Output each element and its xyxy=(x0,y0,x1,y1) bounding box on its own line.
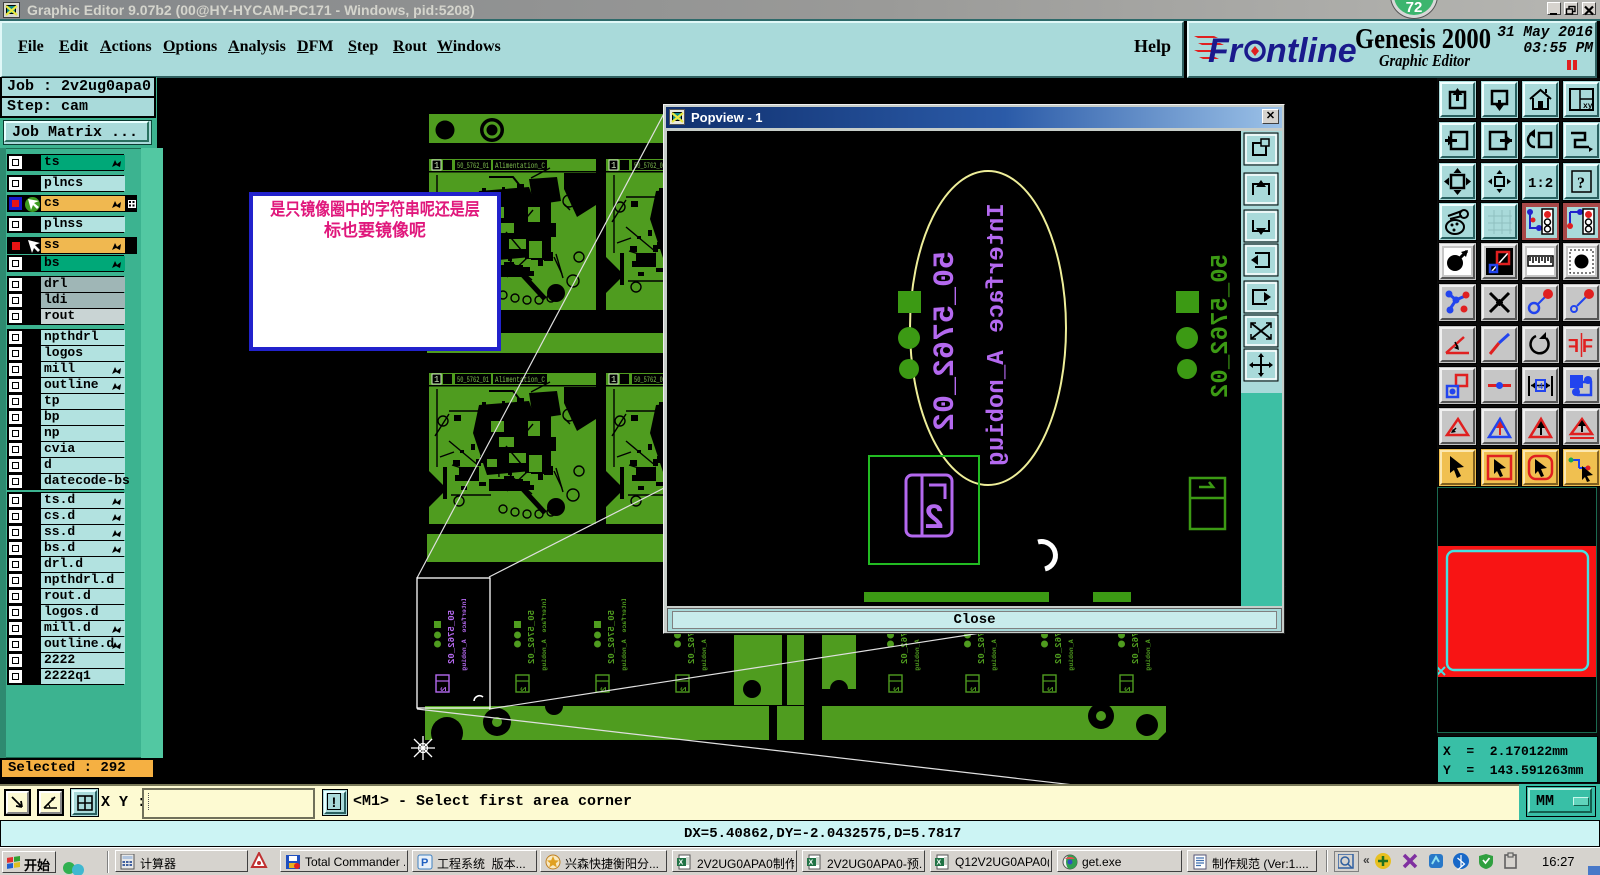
svg-text:xy: xy xyxy=(1583,102,1593,111)
svg-text:F: F xyxy=(1582,336,1593,356)
svg-text:X: X xyxy=(679,860,684,867)
svg-text:?: ? xyxy=(1577,175,1585,192)
svg-text:X: X xyxy=(937,860,942,867)
svg-text:50_5762_02: 50_5762_02 xyxy=(1208,254,1235,398)
svg-text:Graphic Editor: Graphic Editor xyxy=(1379,51,1470,70)
svg-text:X: X xyxy=(809,860,814,867)
svg-text:P: P xyxy=(421,857,428,869)
svg-text:F: F xyxy=(1568,336,1579,356)
svg-text:1:2: 1:2 xyxy=(1528,176,1553,192)
svg-text:4: 4 xyxy=(1538,382,1543,392)
svg-text:Fr: Fr xyxy=(1208,32,1244,70)
svg-text:ntline: ntline xyxy=(1266,32,1357,70)
svg-text:Genesis 2000: Genesis 2000 xyxy=(1355,24,1491,54)
svg-text:A_nobiug: A_nobiug xyxy=(984,350,1011,465)
svg-text:Interface: Interface xyxy=(984,203,1011,333)
svg-text:2: 2 xyxy=(925,498,944,536)
svg-text:50_5762_02: 50_5762_02 xyxy=(929,251,963,431)
